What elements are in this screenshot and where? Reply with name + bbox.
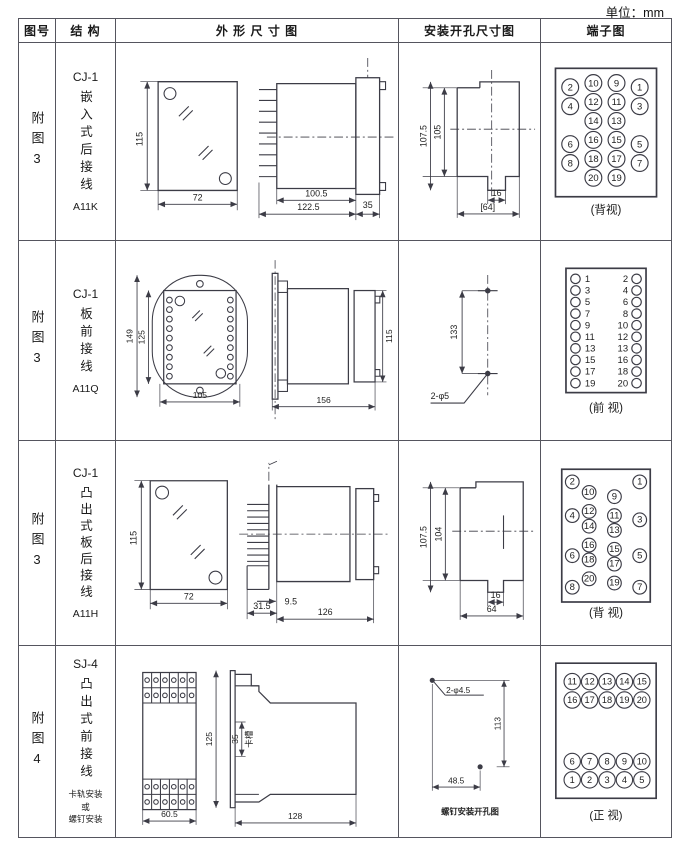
front-view: 149 125 105 bbox=[124, 275, 247, 406]
row2-outline-cell: 149 125 105 156 bbox=[116, 241, 399, 441]
svg-text:3: 3 bbox=[637, 101, 642, 112]
row2-structure: CJ-1 板前接线 A11Q bbox=[56, 241, 116, 441]
header-terminal-label: 端子图 bbox=[586, 22, 625, 39]
fig-no-label: 附图3 bbox=[28, 512, 47, 574]
header-mounting: 安装开孔尺寸图 bbox=[399, 19, 541, 43]
terminal-strips bbox=[167, 297, 234, 379]
row2-terminal-cell: 1234567891011121313151617181920 (前 视) bbox=[541, 241, 671, 441]
svg-text:19: 19 bbox=[609, 578, 620, 589]
structure-desc: 凸出式板后接线 bbox=[76, 486, 95, 602]
svg-text:9: 9 bbox=[585, 320, 590, 331]
dim-front-width: 105 bbox=[193, 390, 208, 400]
svg-text:5: 5 bbox=[639, 775, 644, 785]
svg-text:1: 1 bbox=[585, 274, 590, 285]
dim-front-height: 115 bbox=[134, 131, 144, 145]
svg-text:2: 2 bbox=[570, 477, 575, 488]
datasheet-page: 单位：mm 图号 结 构 外 形 尺 寸 图 安装开孔尺寸图 端子图 附图3 C… bbox=[0, 0, 690, 843]
svg-text:9: 9 bbox=[612, 491, 617, 502]
dim-total-width: 64 bbox=[486, 604, 496, 614]
dim-side-height: 125 bbox=[204, 731, 214, 746]
svg-text:10: 10 bbox=[588, 78, 599, 89]
dim-plate-height: 149 bbox=[124, 328, 134, 343]
dim-front-width: 72 bbox=[193, 192, 203, 202]
svg-text:17: 17 bbox=[609, 559, 620, 570]
svg-text:20: 20 bbox=[618, 378, 629, 389]
row3-mounting-cell: 107.5 104 16 64 bbox=[399, 441, 541, 646]
svg-text:6: 6 bbox=[570, 756, 575, 766]
row3-terminal-cell: 2110912114314131615618175201987 (背 视) bbox=[541, 441, 671, 646]
svg-text:3: 3 bbox=[585, 285, 590, 296]
terminal-view-caption: (背视) bbox=[591, 202, 622, 216]
svg-text:15: 15 bbox=[611, 135, 622, 146]
dim-inner-height: 104 bbox=[433, 527, 443, 542]
svg-text:13: 13 bbox=[618, 343, 629, 354]
dim-tab-width: 16 bbox=[490, 590, 500, 600]
terminal-circles: 2109141211314136161558181772019 bbox=[562, 74, 648, 186]
terminal-circles: 2110912114314131615618175201987 bbox=[565, 475, 646, 594]
terminal-view-caption: (正 视) bbox=[589, 807, 622, 821]
hole-spec-label: 2-φ4.5 bbox=[446, 686, 471, 695]
header-fig-no: 图号 bbox=[19, 19, 56, 43]
terminal-diagram-a11h: 2110912114314131615618175201987 (背 视) bbox=[547, 465, 665, 621]
side-view: 156 115 bbox=[272, 260, 394, 420]
header-outline: 外 形 尺 寸 图 bbox=[116, 19, 399, 43]
header-terminal: 端子图 bbox=[541, 19, 671, 43]
dim-front-width: 60.5 bbox=[161, 809, 178, 819]
svg-text:6: 6 bbox=[623, 297, 628, 308]
row3-outline-cell: 115 72 31.5 9.5 bbox=[116, 441, 399, 646]
header-structure-label: 结 构 bbox=[70, 22, 100, 39]
terminal-circles: 1112131415161718192067891012345 bbox=[564, 673, 650, 788]
svg-text:2: 2 bbox=[587, 775, 592, 785]
svg-text:13: 13 bbox=[609, 525, 620, 536]
row3-structure: CJ-1 凸出式板后接线 A11H bbox=[56, 441, 116, 646]
side-view: 100.5 122.5 35 bbox=[259, 57, 395, 219]
outline-drawing-a11q: 149 125 105 156 bbox=[118, 255, 396, 427]
dim-side-height: 115 bbox=[384, 329, 394, 343]
svg-text:20: 20 bbox=[588, 173, 599, 184]
row4-structure: SJ-4 凸出式前接线 卡轨安装 或 螺钉安装 bbox=[56, 646, 116, 837]
row4-mounting-cell: 2-φ4.5 113 48.5 螺钉安装开孔图 bbox=[399, 646, 541, 837]
terminal-diagram-a11q: 1234567891011121313151617181920 (前 视) bbox=[547, 262, 665, 420]
outline-drawing-a11k: 115 72 100.5 122.5 35 bbox=[118, 54, 396, 230]
fig-no-label: 附图4 bbox=[28, 711, 47, 773]
svg-text:9: 9 bbox=[622, 756, 627, 766]
svg-text:15: 15 bbox=[609, 544, 620, 555]
terminal-diagram-sj4: 1112131415161718192067891012345 (正 视) bbox=[545, 655, 667, 829]
svg-text:8: 8 bbox=[623, 308, 628, 319]
front-view: 115 72 bbox=[128, 481, 227, 610]
dim-flange-depth: 35 bbox=[363, 200, 373, 210]
svg-text:2: 2 bbox=[568, 82, 573, 93]
svg-text:13: 13 bbox=[585, 343, 596, 354]
svg-text:14: 14 bbox=[588, 116, 599, 127]
svg-text:16: 16 bbox=[588, 135, 599, 146]
type-code: A11H bbox=[73, 608, 99, 620]
row1-terminal-cell: 2109141211314136161558181772019 (背视) bbox=[541, 43, 671, 241]
svg-text:1: 1 bbox=[637, 82, 642, 93]
mounting-drawing-sj4: 2-φ4.5 113 48.5 螺钉安装开孔图 bbox=[401, 652, 539, 832]
svg-text:2: 2 bbox=[623, 274, 628, 285]
svg-text:12: 12 bbox=[588, 97, 599, 108]
model-label: CJ-1 bbox=[73, 466, 98, 480]
svg-text:14: 14 bbox=[584, 521, 595, 532]
terminal-diagram-a11k: 2109141211314136161558181772019 (背视) bbox=[547, 62, 665, 222]
svg-text:1: 1 bbox=[637, 477, 642, 488]
svg-text:8: 8 bbox=[568, 158, 573, 169]
svg-text:4: 4 bbox=[622, 775, 627, 785]
header-outline-label: 外 形 尺 寸 图 bbox=[216, 22, 298, 39]
fig-no-label: 附图3 bbox=[28, 310, 47, 372]
structure-desc: 嵌入式后接线 bbox=[76, 90, 95, 195]
svg-text:7: 7 bbox=[585, 308, 590, 319]
svg-text:7: 7 bbox=[637, 158, 642, 169]
svg-text:1: 1 bbox=[570, 775, 575, 785]
dim-body-depth: 128 bbox=[288, 811, 303, 821]
svg-text:16: 16 bbox=[567, 695, 577, 705]
dim-slot: 35 bbox=[230, 734, 240, 744]
dim-body-height: 125 bbox=[137, 329, 147, 344]
dim-tab-width: 16 bbox=[491, 188, 501, 198]
row4-outline-cell: 60.5 125 35 卡槽 128 bbox=[116, 646, 399, 837]
terminal-view-caption: (背 视) bbox=[589, 606, 623, 620]
header-structure: 结 构 bbox=[56, 19, 116, 43]
svg-text:19: 19 bbox=[611, 173, 622, 184]
svg-text:15: 15 bbox=[585, 355, 596, 366]
dim-hole-pitch: 133 bbox=[449, 324, 459, 339]
svg-text:10: 10 bbox=[618, 320, 629, 331]
row2-mounting-cell: 133 2-φ5 bbox=[399, 241, 541, 441]
svg-text:8: 8 bbox=[570, 582, 575, 593]
dim-outer-height: 107.5 bbox=[418, 526, 428, 548]
front-view: 115 72 bbox=[134, 81, 237, 210]
type-code: A11K bbox=[73, 201, 98, 213]
row1-outline-cell: 115 72 100.5 122.5 35 bbox=[116, 43, 399, 241]
row4-terminal-cell: 1112131415161718192067891012345 (正 视) bbox=[541, 646, 671, 837]
terminal-view-caption: (前 视) bbox=[589, 400, 623, 414]
svg-text:9: 9 bbox=[614, 78, 619, 89]
svg-text:4: 4 bbox=[623, 285, 628, 296]
svg-text:17: 17 bbox=[611, 154, 622, 165]
dim-total-depth: 122.5 bbox=[297, 202, 319, 212]
terminal-circles: 1234567891011121313151617181920 bbox=[571, 274, 642, 389]
header-fig-no-label: 图号 bbox=[24, 22, 50, 39]
row4-fig-no: 附图4 bbox=[19, 646, 56, 837]
dim-body-depth: 100.5 bbox=[305, 188, 327, 198]
dim-inner-height: 105 bbox=[432, 124, 442, 139]
mounting-drawing-a11h: 107.5 104 16 64 bbox=[401, 458, 539, 628]
svg-text:13: 13 bbox=[611, 116, 622, 127]
side-view: 125 35 卡槽 128 bbox=[204, 670, 356, 826]
svg-text:6: 6 bbox=[568, 139, 573, 150]
svg-text:20: 20 bbox=[637, 695, 647, 705]
svg-text:14: 14 bbox=[619, 676, 629, 686]
svg-text:3: 3 bbox=[604, 775, 609, 785]
svg-text:19: 19 bbox=[619, 695, 629, 705]
svg-text:6: 6 bbox=[570, 550, 575, 561]
front-view: 60.5 bbox=[143, 672, 196, 824]
fig-no-label: 附图3 bbox=[28, 111, 47, 173]
svg-text:11: 11 bbox=[612, 97, 622, 108]
svg-text:17: 17 bbox=[585, 366, 596, 377]
spec-table: 图号 结 构 外 形 尺 寸 图 安装开孔尺寸图 端子图 附图3 CJ-1 嵌入… bbox=[18, 18, 672, 838]
row1-fig-no: 附图3 bbox=[19, 43, 56, 241]
slot-label: 卡槽 bbox=[243, 730, 254, 748]
svg-text:18: 18 bbox=[602, 695, 612, 705]
svg-text:17: 17 bbox=[584, 695, 594, 705]
structure-desc: 凸出式前接线 bbox=[76, 677, 95, 782]
mounting-drawing-a11k: 107.5 105 16 [64] bbox=[401, 58, 539, 226]
mounting-note: 卡轨安装 或 螺钉安装 bbox=[68, 788, 102, 826]
hole-spec-label: 2-φ5 bbox=[430, 391, 449, 401]
type-code: A11Q bbox=[72, 383, 98, 395]
structure-desc: 板前接线 bbox=[76, 307, 95, 377]
svg-text:7: 7 bbox=[587, 756, 592, 766]
row1-structure: CJ-1 嵌入式后接线 A11K bbox=[56, 43, 116, 241]
svg-text:18: 18 bbox=[584, 555, 595, 566]
model-label: CJ-1 bbox=[73, 287, 98, 301]
row2-fig-no: 附图3 bbox=[19, 241, 56, 441]
dim-body-depth: 126 bbox=[318, 607, 333, 617]
svg-text:13: 13 bbox=[602, 676, 612, 686]
dim-front-height: 115 bbox=[128, 531, 138, 545]
side-view: 31.5 9.5 126 bbox=[239, 460, 387, 623]
svg-text:12: 12 bbox=[584, 506, 595, 517]
svg-text:11: 11 bbox=[567, 676, 577, 686]
row1-mounting-cell: 107.5 105 16 [64] bbox=[399, 43, 541, 241]
dim-pin-depth: 31.5 bbox=[253, 601, 270, 611]
model-label: CJ-1 bbox=[73, 70, 98, 84]
svg-text:11: 11 bbox=[610, 510, 620, 521]
svg-text:5: 5 bbox=[637, 550, 642, 561]
dim-outer-height: 107.5 bbox=[418, 124, 428, 146]
svg-text:5: 5 bbox=[637, 139, 642, 150]
svg-text:18: 18 bbox=[618, 366, 629, 377]
mounting-drawing-a11q: 133 2-φ5 bbox=[401, 257, 539, 425]
svg-text:8: 8 bbox=[604, 756, 609, 766]
svg-text:5: 5 bbox=[585, 297, 590, 308]
dim-total-width: [64] bbox=[480, 202, 495, 212]
svg-text:20: 20 bbox=[584, 573, 595, 584]
header-mounting-label: 安装开孔尺寸图 bbox=[424, 22, 515, 39]
svg-text:12: 12 bbox=[584, 676, 594, 686]
dim-hole-height: 113 bbox=[493, 716, 502, 730]
svg-text:7: 7 bbox=[637, 582, 642, 593]
svg-text:10: 10 bbox=[637, 756, 647, 766]
svg-text:15: 15 bbox=[637, 676, 647, 686]
mounting-caption: 螺钉安装开孔图 bbox=[441, 806, 499, 816]
outline-drawing-a11h: 115 72 31.5 9.5 bbox=[118, 455, 396, 631]
row3-fig-no: 附图3 bbox=[19, 441, 56, 646]
svg-text:18: 18 bbox=[588, 154, 599, 165]
svg-text:10: 10 bbox=[584, 487, 595, 498]
svg-text:19: 19 bbox=[585, 378, 596, 389]
svg-text:4: 4 bbox=[568, 101, 573, 112]
svg-text:16: 16 bbox=[618, 355, 629, 366]
svg-text:3: 3 bbox=[637, 514, 642, 525]
dim-gap: 9.5 bbox=[285, 596, 297, 606]
dim-front-width: 72 bbox=[184, 591, 194, 601]
dim-side-depth: 156 bbox=[317, 394, 332, 404]
svg-text:16: 16 bbox=[584, 540, 595, 551]
model-label: SJ-4 bbox=[73, 657, 98, 671]
dim-hole-width: 48.5 bbox=[448, 776, 464, 785]
svg-text:4: 4 bbox=[570, 510, 575, 521]
svg-text:12: 12 bbox=[618, 331, 629, 342]
outline-drawing-sj4: 60.5 125 35 卡槽 128 bbox=[118, 650, 396, 834]
svg-text:11: 11 bbox=[585, 331, 595, 342]
